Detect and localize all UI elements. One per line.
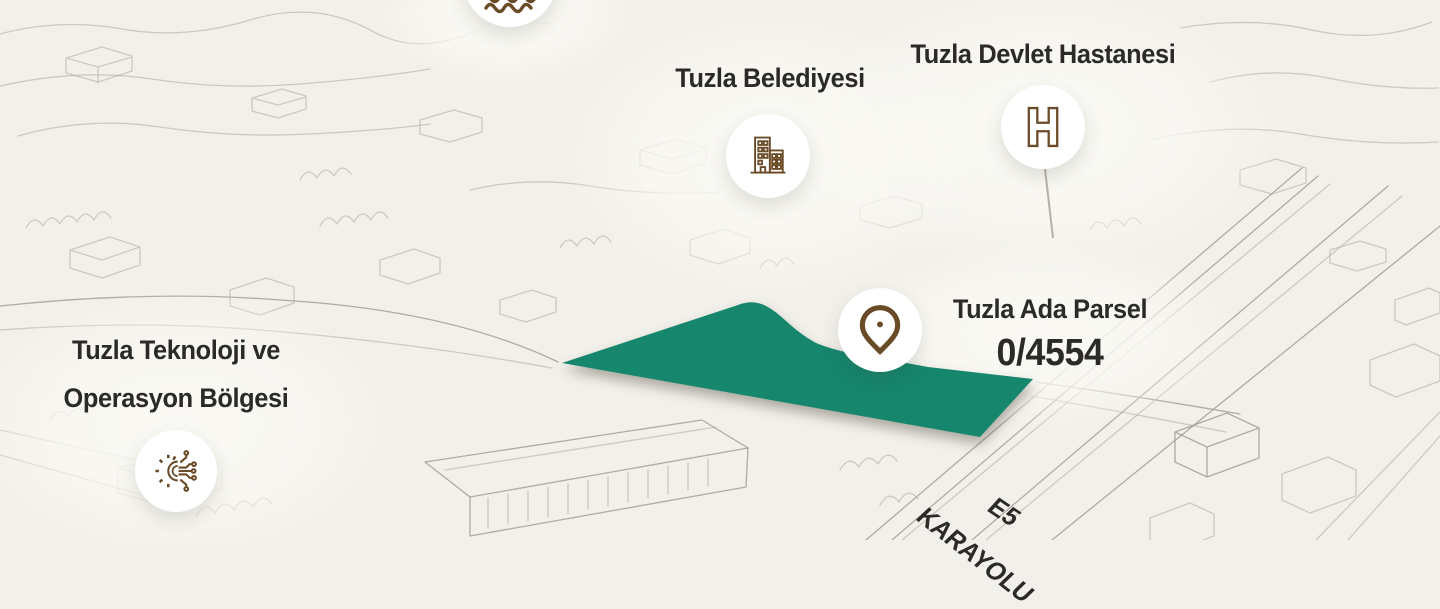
- marker-circle-hastane[interactable]: [1001, 85, 1085, 169]
- map-scene: { "theme": { "bg": "#f2f0ea", "sketch": …: [0, 0, 1440, 540]
- label-tuzla-ada-parsel: Tuzla Ada Parsel: [909, 295, 1191, 325]
- waves-icon: [478, 0, 542, 17]
- label-teknoloji-line2: Operasyon Bölgesi: [11, 374, 342, 422]
- hospital-h-icon: [1025, 105, 1061, 149]
- label-tuzla-devlet-hastanesi: Tuzla Devlet Hastanesi: [855, 40, 1231, 70]
- label-parsel-number: 0/4554: [909, 334, 1191, 374]
- label-teknoloji-line1: Tuzla Teknoloji ve: [11, 326, 342, 374]
- marker-circle-teknoloji[interactable]: [135, 430, 217, 512]
- building-icon: [744, 132, 792, 180]
- marker-circle-belediye[interactable]: [726, 114, 810, 198]
- gear-circuit-icon: [152, 447, 200, 495]
- map-pin-icon: [857, 304, 903, 356]
- label-tuzla-teknoloji: Tuzla Teknoloji ve Operasyon Bölgesi: [11, 326, 342, 422]
